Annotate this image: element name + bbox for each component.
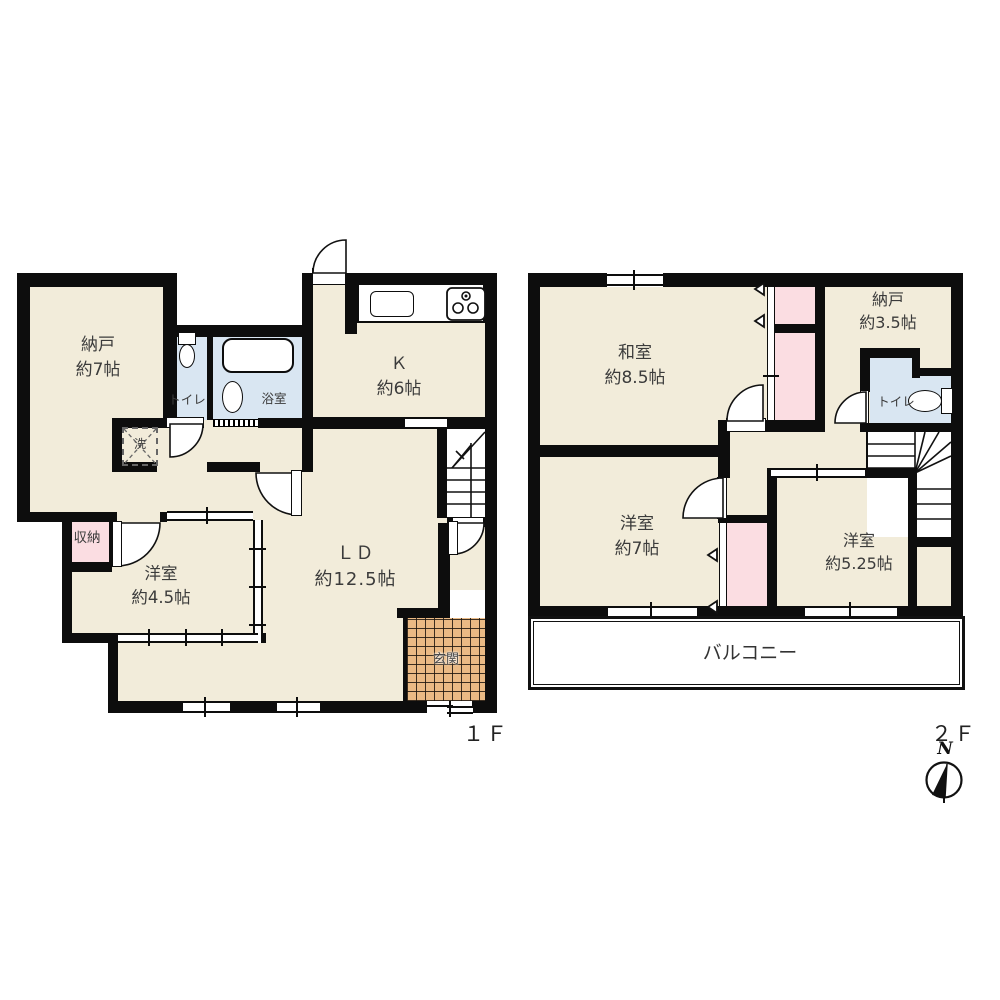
closet-arrow-icon — [753, 282, 765, 296]
wall — [663, 273, 963, 287]
floor-area-nando — [30, 285, 170, 522]
window-north-2f — [607, 274, 663, 286]
wall — [345, 287, 357, 334]
door-leaf — [112, 521, 122, 567]
window-tick — [249, 548, 266, 550]
room-label-nando-1f: 納戸約7帖 — [38, 333, 158, 382]
room-label-shuno: 収納 — [64, 529, 110, 549]
window-tick — [204, 697, 206, 717]
window-tick — [249, 624, 266, 626]
toilet-bowl-icon — [179, 344, 195, 368]
room-label-kitchen: Ｋ約6帖 — [360, 352, 438, 401]
closet-western7 — [727, 523, 767, 613]
wall — [258, 418, 302, 428]
wall — [472, 701, 497, 713]
window-tick — [763, 375, 779, 377]
slider-western525-top — [771, 468, 865, 478]
window-tick — [206, 507, 208, 524]
wall — [160, 512, 167, 522]
wall — [437, 429, 447, 518]
wall — [302, 273, 313, 472]
closet-doors-washitsu — [767, 287, 775, 420]
room-label-western7: 洋室約7帖 — [577, 512, 697, 561]
wall — [951, 273, 963, 618]
floor-area-toilet-2f — [870, 356, 916, 423]
closet-oshiire-1 — [775, 285, 815, 327]
door-arc-kitchen-north[interactable] — [313, 240, 346, 273]
wall — [485, 273, 497, 713]
bathtub-icon — [222, 338, 294, 373]
floor-plan-canvas: 納戸約7帖 トイレ 浴室 洗 Ｋ約6帖 ＬＤ約12.5帖 収納 洋室約4.5帖 … — [0, 0, 1000, 1000]
room-label-washitsu: 和室約8.5帖 — [575, 341, 695, 390]
wall — [528, 445, 730, 457]
window-tick — [816, 464, 818, 481]
wall — [815, 285, 825, 432]
door-arc-western-1f[interactable] — [117, 523, 160, 566]
floor1-label: １Ｆ — [463, 718, 509, 748]
wall — [207, 462, 260, 472]
shoe-cabinet — [450, 590, 485, 618]
window-tick — [185, 629, 187, 646]
wall — [763, 420, 825, 432]
stairs-1f[interactable] — [447, 429, 485, 517]
bath-basin-icon — [222, 381, 243, 413]
room-label-toilet-1f: トイレ — [165, 391, 209, 409]
compass-icon — [912, 742, 976, 806]
wall — [447, 417, 497, 429]
toilet-tank-icon — [941, 388, 953, 414]
closet-doors-western7 — [719, 523, 727, 606]
door-arc-toilet-2f[interactable] — [835, 392, 866, 423]
wall — [483, 517, 497, 527]
closet-arrow-icon — [706, 600, 718, 614]
kitchen-ld-opening — [405, 417, 447, 429]
window-south-1 — [183, 701, 230, 713]
closet-arrow-icon — [753, 314, 765, 328]
door-leaf — [448, 521, 458, 555]
wall — [767, 468, 777, 606]
room-label-laundry: 洗 — [124, 436, 156, 453]
wall — [866, 432, 868, 473]
wall — [313, 417, 405, 429]
kitchen-sink-icon — [370, 291, 414, 317]
room-label-balcony: バルコニー — [650, 640, 850, 668]
wall — [108, 701, 183, 713]
wall — [397, 608, 450, 618]
window-tick — [249, 586, 266, 588]
window-tick — [221, 629, 223, 646]
wall — [17, 273, 30, 522]
wall — [320, 701, 427, 713]
room-label-entrance: 玄関 — [412, 651, 480, 670]
window-tick — [148, 629, 150, 646]
room-label-nando-2f: 納戸約3.5帖 — [826, 288, 950, 334]
slider-western-bottom — [118, 633, 258, 643]
closet-arrow-icon — [706, 548, 718, 562]
wall — [860, 423, 951, 432]
wall — [916, 368, 951, 376]
door-leaf — [291, 470, 302, 516]
bath-slider — [213, 419, 258, 427]
room-label-toilet-2f: トイレ — [874, 393, 918, 411]
room-label-western-1f: 洋室約4.5帖 — [105, 562, 217, 610]
closet-oshiire-2 — [775, 333, 815, 420]
wall — [17, 273, 177, 287]
window-tick — [633, 270, 635, 290]
window-south-2 — [277, 701, 320, 713]
wall — [230, 701, 277, 713]
wall — [860, 348, 870, 392]
door-arc-toilet-1f[interactable] — [170, 424, 203, 457]
room-label-ld: ＬＤ約12.5帖 — [298, 541, 413, 593]
wall — [108, 633, 118, 713]
window-tick — [296, 697, 298, 717]
room-label-bath: 浴室 — [252, 390, 296, 408]
slider-western-top — [167, 511, 253, 521]
door-arc-washitsu[interactable] — [727, 385, 763, 421]
stove-icon — [446, 287, 486, 321]
room-label-western525: 洋室約5.25帖 — [800, 529, 918, 575]
